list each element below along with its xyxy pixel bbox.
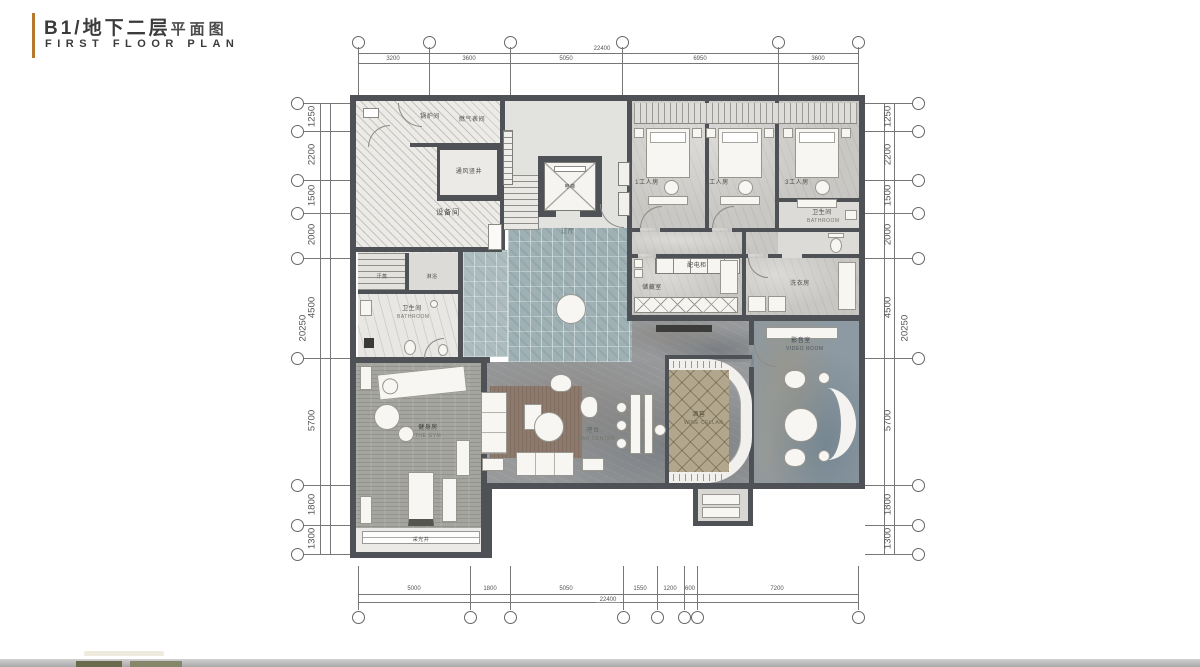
- dim-top-seg: 3600: [806, 56, 830, 61]
- grid-line: [778, 47, 779, 95]
- bed: [646, 128, 690, 178]
- side-table: [818, 372, 830, 384]
- dim-line-bottom-segments: [358, 594, 858, 595]
- room-sublabel-wine: WINE CELLAR: [684, 421, 714, 426]
- door-gap: [640, 228, 660, 232]
- nightstand: [634, 128, 644, 138]
- grid-bubble: [912, 207, 925, 220]
- grid-bubble: [852, 611, 865, 624]
- lounge-round-table: [534, 412, 564, 442]
- side-table: [482, 458, 504, 471]
- wall-outer-bottom: [486, 483, 865, 489]
- nightstand: [692, 128, 702, 138]
- grid-bubble: [291, 352, 304, 365]
- dim-bottom-seg: 7200: [765, 586, 789, 591]
- grid-line: [470, 566, 471, 610]
- grid-bubble: [912, 519, 925, 532]
- exercise-bike: [442, 478, 457, 522]
- grid-bubble: [352, 611, 365, 624]
- ac-unit: [702, 507, 740, 518]
- storage-cabinet: [720, 260, 738, 294]
- dim-bottom-seg: 600: [678, 586, 702, 591]
- dim-right-seg: 1800: [885, 493, 890, 517]
- bar-stool: [616, 420, 627, 431]
- room-sublabel-bar: BAR CENTER: [578, 437, 608, 442]
- grid-bubble: [291, 548, 304, 561]
- dim-bottom-overall: 22400: [596, 597, 620, 602]
- door-gap: [638, 254, 656, 258]
- vanity-sink: [360, 300, 372, 316]
- shower-head: [430, 300, 438, 308]
- room-label-worker2: 2工人房: [699, 180, 735, 186]
- dim-top-seg: 3600: [457, 56, 481, 61]
- room-label-video: 影音室: [783, 338, 819, 344]
- room-label-storage: 储藏室: [634, 285, 670, 291]
- grid-line: [623, 566, 624, 610]
- grid-bubble: [912, 479, 925, 492]
- treadmill: [408, 472, 434, 526]
- grid-line: [858, 566, 859, 610]
- grid-bubble: [291, 97, 304, 110]
- wall-outer-left: [350, 95, 356, 558]
- door-gap: [712, 228, 732, 232]
- room-label-equipment: 设备间: [426, 209, 469, 216]
- wine-rack-ticks-top: [673, 361, 727, 368]
- bench: [797, 199, 837, 208]
- storage-shelves: [634, 297, 738, 313]
- dim-right-overall: 20250: [902, 318, 907, 342]
- dim-right-seg: 1500: [885, 184, 890, 208]
- room-label-steam: 汗蒸: [367, 275, 397, 280]
- grid-bubble: [691, 611, 704, 624]
- dim-line-top-segments: [358, 63, 858, 64]
- grid-bubble: [912, 174, 925, 187]
- room-sublabel-gym: THE GYM: [413, 434, 443, 439]
- stool: [738, 180, 753, 195]
- wall-basement-mid: [627, 315, 859, 321]
- dim-top-seg: 5050: [554, 56, 578, 61]
- wall-outer-bottom-left: [350, 552, 492, 558]
- bench: [720, 196, 760, 205]
- dim-right-seg: 1300: [885, 527, 890, 551]
- room-label-shaft: 通风竖井: [451, 169, 487, 175]
- grid-line: [303, 258, 350, 259]
- room-label-elevator: 电梯: [555, 185, 585, 190]
- grid-line: [303, 131, 350, 132]
- stool: [664, 180, 679, 195]
- grid-line: [303, 358, 350, 359]
- grid-line: [429, 47, 430, 95]
- armchair: [784, 448, 806, 467]
- floor-plan-sheet: B1/地下二层平面图 FIRST FLOOR PLAN 22400 3200 3…: [0, 0, 1200, 667]
- room-label-boiler: 锅炉间: [412, 114, 448, 120]
- wall-box: [618, 192, 630, 216]
- dim-bottom-seg: 5000: [402, 586, 426, 591]
- page-title-cn-main: B1/地下二层: [44, 18, 171, 39]
- dim-left-seg: 5700: [309, 409, 314, 433]
- armchair: [580, 396, 598, 418]
- grid-line: [865, 554, 912, 555]
- wall-spa-top: [350, 247, 502, 252]
- room-label-worker3: 3工人房: [779, 180, 815, 186]
- meter-box: [634, 259, 643, 268]
- grid-line: [510, 566, 511, 610]
- grid-line: [858, 47, 859, 95]
- wall-boiler-bottom: [410, 143, 502, 147]
- nightstand: [764, 128, 774, 138]
- sofa-left: [481, 392, 507, 454]
- dim-left-seg: 1800: [309, 493, 314, 517]
- shower-room: [408, 253, 458, 292]
- stool: [815, 180, 830, 195]
- grid-line: [865, 131, 912, 132]
- dim-left-seg: 1250: [309, 105, 314, 129]
- bed: [718, 128, 762, 178]
- bar-back-counter: [644, 394, 653, 454]
- footer-smudge: [84, 651, 164, 656]
- grid-bubble: [504, 611, 517, 624]
- video-round-table: [784, 408, 818, 442]
- wall-spa-bottom: [350, 357, 490, 363]
- bar-sink: [654, 424, 666, 436]
- wall-spa-inner-v: [405, 253, 409, 292]
- room-label-shower: 淋浴: [417, 275, 447, 280]
- exercise-ball-large: [374, 404, 400, 430]
- room-label-worker-bath: 卫生间: [804, 210, 840, 216]
- grid-line: [303, 554, 350, 555]
- wardrobe-strip: [634, 103, 857, 124]
- corridor-console: [656, 325, 712, 332]
- wall-outer-top: [350, 95, 865, 101]
- dim-top-overall: 22400: [590, 46, 614, 51]
- bar-stool: [616, 402, 627, 413]
- grid-bubble: [291, 174, 304, 187]
- gas-meter-boxes: [503, 130, 513, 185]
- nightstand: [783, 128, 793, 138]
- grid-bubble: [291, 519, 304, 532]
- dim-left-seg: 2000: [309, 223, 314, 247]
- grid-bubble: [912, 548, 925, 561]
- bed: [795, 128, 839, 178]
- wall-niche-bottom: [693, 521, 753, 526]
- title-accent-bar: [32, 13, 35, 58]
- dim-right-seg: 5700: [885, 409, 890, 433]
- wine-rack-ticks-bottom: [673, 474, 727, 481]
- door-gap: [782, 254, 802, 258]
- grid-line: [510, 47, 511, 95]
- armchair: [550, 374, 572, 392]
- armchair: [784, 370, 806, 389]
- dim-line-right-segments: [884, 103, 885, 554]
- toilet: [830, 238, 842, 253]
- page-title: B1/地下二层平面图: [44, 13, 228, 40]
- dim-left-overall: 20250: [300, 318, 305, 342]
- footer-logo-fragment: [130, 661, 182, 667]
- side-table: [582, 458, 604, 471]
- ac-unit: [702, 494, 740, 505]
- room-label-bar: 吧台: [575, 428, 611, 434]
- wall-shaft-stub: [437, 196, 503, 201]
- grid-line: [303, 485, 350, 486]
- grid-line: [865, 258, 912, 259]
- page-subtitle: FIRST FLOOR PLAN: [45, 38, 239, 50]
- dim-bottom-seg: 1550: [628, 586, 652, 591]
- grid-bubble: [291, 479, 304, 492]
- wall-spa-right: [458, 250, 463, 362]
- grid-bubble: [464, 611, 477, 624]
- grid-bubble: [291, 207, 304, 220]
- dim-line-left-segments: [320, 103, 321, 554]
- dim-top-seg: 6950: [688, 56, 712, 61]
- dim-left-seg: 2200: [309, 143, 314, 167]
- gym-bench: [360, 366, 372, 390]
- dim-line-right-overall: [894, 103, 895, 554]
- room-sublabel-video: VIDEO ROOM: [786, 347, 816, 352]
- grid-bubble: [912, 252, 925, 265]
- wall-storage-laundry: [742, 232, 746, 315]
- wall-outer-right: [859, 95, 865, 489]
- nightstand: [706, 128, 716, 138]
- massage-table-head: [381, 378, 399, 396]
- grid-bubble: [617, 611, 630, 624]
- elevator-counterweight: [554, 166, 586, 172]
- room-label-wine: 酒窖: [681, 412, 717, 418]
- room-label-laundry: 洗衣房: [782, 281, 818, 287]
- room-label-hall: 过厅: [550, 229, 586, 235]
- dim-line-top-overall: [358, 53, 858, 54]
- dim-bottom-seg: 5050: [554, 586, 578, 591]
- nightstand: [841, 128, 851, 138]
- dim-top-seg: 3200: [381, 56, 405, 61]
- steam-room: [358, 253, 406, 292]
- sink: [845, 210, 857, 220]
- gym-bench: [360, 496, 372, 524]
- bench: [648, 196, 688, 205]
- dim-left-seg: 4500: [309, 296, 314, 320]
- grid-line: [358, 566, 359, 610]
- grid-bubble: [291, 252, 304, 265]
- laundry-counter: [838, 262, 856, 310]
- grid-line: [622, 47, 623, 95]
- bath-mat: [364, 338, 374, 348]
- dim-line-left-overall: [330, 103, 331, 554]
- hall-round-table: [556, 294, 586, 324]
- room-label-spa-bath: 卫生间: [394, 306, 430, 312]
- hall-corridor-floor: [463, 250, 508, 357]
- grid-line: [865, 358, 912, 359]
- room-label-gym: 健身房: [410, 425, 446, 431]
- page-title-cn-sub: 平面图: [171, 21, 228, 38]
- door-gap: [556, 211, 580, 217]
- grid-line: [865, 485, 912, 486]
- wall-gym-right: [481, 357, 487, 552]
- dim-right-seg: 2000: [885, 223, 890, 247]
- water-meter-box: [488, 224, 502, 250]
- gym-rack: [456, 440, 470, 476]
- grid-bubble: [912, 125, 925, 138]
- bar-stool: [616, 438, 627, 449]
- window-box: [363, 108, 379, 118]
- sofa-bottom: [516, 452, 574, 476]
- grid-bubble: [912, 352, 925, 365]
- room-label-gas-meter: 燃气表间: [454, 117, 490, 123]
- grid-line: [865, 180, 912, 181]
- dryer: [768, 296, 786, 312]
- grid-bubble: [651, 611, 664, 624]
- dim-left-seg: 1300: [309, 527, 314, 551]
- grid-bubble: [291, 125, 304, 138]
- grid-line: [303, 180, 350, 181]
- footer-logo-fragment: [76, 661, 122, 667]
- room-sublabel-spa-bath: BATHROOM: [397, 315, 427, 320]
- grid-line: [865, 213, 912, 214]
- room-label-worker1: 1工人房: [629, 180, 665, 186]
- dim-right-seg: 1250: [885, 105, 890, 129]
- meter-box: [634, 269, 643, 278]
- bar-counter: [630, 394, 641, 454]
- grid-line: [358, 47, 359, 95]
- room-sublabel-worker-bath: BATHROOM: [807, 219, 837, 224]
- washer: [748, 296, 766, 312]
- grid-line: [303, 213, 350, 214]
- dim-right-seg: 4500: [885, 296, 890, 320]
- dim-bottom-seg: 1800: [478, 586, 502, 591]
- room-label-lightwell: 采光井: [406, 538, 436, 543]
- room-label-distribution: 配电柜: [679, 263, 715, 269]
- grid-bubble: [912, 97, 925, 110]
- dim-right-seg: 2200: [885, 143, 890, 167]
- toilet: [404, 340, 416, 355]
- dim-left-seg: 1500: [309, 184, 314, 208]
- grid-bubble: [678, 611, 691, 624]
